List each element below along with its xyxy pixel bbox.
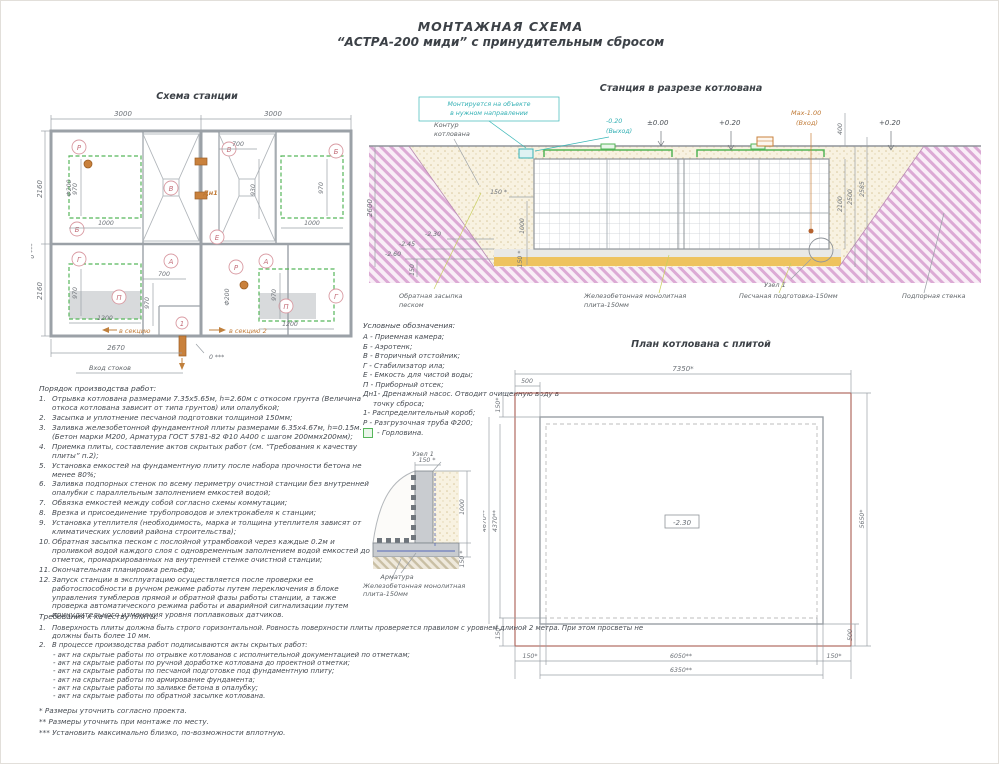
distribution-box-icon — [757, 137, 773, 146]
label-P-otsek2: П — [283, 303, 289, 311]
dim-2585: 2585 — [859, 181, 866, 197]
dim-6050: 6050** — [670, 653, 692, 660]
elev-260: -2.60 — [385, 251, 401, 258]
dim-f200-right: Ф200 — [224, 288, 231, 305]
dim-500-right: 500 — [847, 629, 854, 641]
dim-970: 970 — [72, 287, 79, 299]
legend-title: Условные обозначения: — [363, 321, 573, 331]
label-A1: А — [168, 258, 174, 266]
work-order-item: 7.Обвязка емкостей между собой согласно … — [39, 499, 371, 508]
sheet-title-line2: “АСТРА-200 миди” с принудительным сбросо… — [1, 35, 999, 49]
node1-dim-150-top: 150 * — [419, 457, 436, 464]
outlet-elevation: -0.20 — [606, 118, 622, 125]
dim-7350: 7350* — [672, 365, 694, 373]
inlet-word: (Вход) — [796, 119, 818, 127]
work-order-item: 6.Заливка подпорных стенок по всему пери… — [39, 480, 371, 498]
zero-elevation: ±0.00 — [647, 119, 669, 127]
dim-150-topleft: 150* — [495, 398, 502, 413]
work-order-item: 2.Засыпка и уплотнение песчаной подготов… — [39, 414, 371, 423]
hidden-work-act: - акт на скрытые работы по песчаной подг… — [39, 667, 659, 675]
inlet-label: Вход стоков — [89, 364, 131, 372]
label-V2: В — [227, 146, 232, 154]
label-distribution-box: 1 — [180, 320, 184, 328]
relief-pipe-icon — [240, 281, 248, 289]
dim-400: 400 — [837, 123, 844, 135]
node1-backfill — [433, 471, 459, 543]
drawing-sheet: МОНТАЖНАЯ СХЕМА “АСТРА-200 миди” с прину… — [0, 0, 999, 764]
dim-6350: 6350** — [670, 667, 692, 674]
station-tanks — [534, 159, 829, 249]
dim-4370: 4370** — [492, 510, 499, 532]
plate-requirements-block: Требования к качеству плиты: 1.Поверхнос… — [39, 613, 659, 700]
contour-label1: Контур — [434, 121, 459, 129]
plus020-right: +0.20 — [879, 119, 901, 127]
axis-mark-bottom: 0 *** — [209, 354, 224, 361]
retaining-wall-label: Подпорная стенка — [902, 292, 965, 300]
work-order-title: Порядок производства работ: — [39, 384, 371, 393]
label-A2: А — [263, 258, 269, 266]
dim-3000-right: 3000 — [264, 110, 282, 118]
dim-150-bottom: 150 * — [517, 251, 524, 268]
inlet-elevation: Max-1.00 — [791, 109, 821, 117]
dim-970: 970 — [271, 289, 278, 301]
dim-2600: 2600 — [366, 199, 374, 217]
node1-rebar-label: Арматура — [379, 573, 413, 581]
to-section1-label: в секцию — [119, 327, 151, 335]
node1-callout-label: Узел 1 — [764, 281, 786, 289]
dim-1200: 1200 — [97, 315, 113, 322]
dim-2160-bottom: 2160 — [36, 282, 44, 300]
to-section2-label: в секцию 2 — [229, 327, 267, 335]
plate-req-item: 2.В процессе производства работ подписыв… — [39, 641, 659, 649]
work-order-item: 4.Приемка плиты, составление актов скрыт… — [39, 443, 371, 461]
mount-note-line2: в нужном направлении — [450, 110, 528, 117]
dim-500-top: 500 — [521, 378, 533, 385]
work-order-item: 1.Отрывка котлована размерами 7.35х5.65м… — [39, 395, 371, 413]
slab-band — [494, 249, 841, 257]
dim-970: 970 — [144, 297, 151, 309]
dim-930: 930 — [250, 184, 257, 196]
hidden-work-act: - акт на скрытые работы по обратной засы… — [39, 692, 659, 700]
hidden-work-act: - акт на скрытые работы по отрывке котло… — [39, 651, 659, 659]
node1-dim-1000: 1000 — [459, 499, 466, 515]
hidden-work-act: - акт на скрытые работы по армирование ф… — [39, 676, 659, 684]
dim-1000: 1000 — [519, 218, 526, 234]
pit-plan-title: План котлована с плитой — [483, 339, 919, 350]
plus020-left: +0.20 — [719, 119, 741, 127]
node1-sand-under — [373, 557, 459, 569]
mount-note-line1: Монтируется на объекте — [447, 100, 530, 108]
label-B1: Б — [75, 226, 80, 234]
dim-2100: 2100 — [837, 196, 844, 212]
label-P-otsek1: П — [116, 294, 122, 302]
hidden-work-act: - акт на скрытые работы по заливке бетон… — [39, 684, 659, 692]
slab-label2: плита-150мм — [584, 301, 629, 309]
elev-230: -2.30 — [425, 231, 441, 238]
slab-label1: Железобетонная монолитная — [583, 292, 686, 300]
node1-slab-label1: Железобетонная монолитная — [362, 582, 465, 590]
work-order-item: 8.Врезка и присоединение трубопроводов и… — [39, 509, 371, 518]
footnote: *** Установить максимально близко, по-во… — [39, 729, 379, 738]
pit-cross-section-drawing: Монтируется на объекте в нужном направле… — [359, 93, 993, 329]
sand-prep-label: Песчаная подготовка-150мм — [739, 292, 838, 300]
node1-detail-drawing: Узел 1 150 * 1000 150 * Арматура Железоб… — [361, 447, 485, 597]
dim-970: 970 — [318, 182, 325, 194]
outlet-pipe-icon — [519, 149, 533, 158]
dim-150-top: 150 * — [490, 189, 507, 196]
hatch-label: - Горловина. — [377, 428, 424, 438]
outlet-word: (Выход) — [606, 128, 632, 135]
backfill-label2: песком — [399, 301, 424, 309]
dim-1000: 1000 — [304, 220, 320, 227]
dim-2160-top: 2160 — [36, 180, 44, 198]
dim-970: 970 — [72, 183, 79, 195]
axis-mark-left: 0 *** — [31, 243, 36, 258]
backfill-label1: Обратная засыпка — [399, 292, 463, 300]
hidden-work-act: - акт на скрытые работы по ручной дорабо… — [39, 659, 659, 667]
footnote: ** Размеры уточнить при монтаже по месту… — [39, 718, 379, 727]
dim-2500: 2500 — [847, 189, 854, 205]
sheet-title-line1: МОНТАЖНАЯ СХЕМА — [1, 19, 999, 34]
pit-bottom-elevation: -2.30 — [673, 519, 692, 527]
label-Dn1: Дн1 — [202, 189, 218, 197]
footnote: * Размеры уточнить согласно проекта. — [39, 707, 379, 716]
work-order-item: 11.Окончательная планировка рельефа; — [39, 566, 371, 575]
contour-label2: котлована — [434, 130, 470, 138]
work-order-block: Порядок производства работ: 1.Отрывка ко… — [39, 384, 371, 621]
undisturbed-soil-bottom — [459, 267, 879, 283]
node1-retaining-wall — [415, 471, 433, 543]
work-order-item: 10.Обратная засыпка песком с послойной у… — [39, 538, 371, 565]
dim-150: 150 — [409, 264, 416, 276]
dim-1200: 1200 — [282, 321, 298, 328]
elev-245: -2.45 — [399, 241, 415, 248]
station-plan-drawing: Р Б В В Б Е Г П А 1 Р А П Г Дн1 — [31, 101, 363, 381]
dim-2670: 2670 — [107, 344, 125, 352]
dim-700: 700 — [158, 271, 170, 278]
node1-tank-wall — [373, 471, 415, 543]
node1-slab — [373, 543, 459, 557]
dim-150-bottom-b: 150* — [827, 653, 842, 660]
footnotes-block: * Размеры уточнить согласно проекта. ** … — [39, 707, 379, 740]
work-order-item: 3.Заливка железобетонной фундаментной пл… — [39, 424, 371, 442]
dim-3000-left: 3000 — [114, 110, 132, 118]
node1-dim-150-bottom: 150 * — [459, 551, 466, 568]
label-V1: В — [169, 185, 174, 193]
dim-1000: 1000 — [98, 220, 114, 227]
plate-req-item: 1.Поверхность плиты должна быть строго г… — [39, 624, 659, 641]
label-E: Е — [215, 234, 220, 242]
work-order-item: 9.Установка утеплителя (необходимость, м… — [39, 519, 371, 537]
dim-700: 700 — [232, 141, 244, 148]
label-B2: Б — [334, 148, 339, 156]
relief-pipe-icon — [84, 160, 92, 168]
work-order-item: 5.Установка емкостей на фундаментную пли… — [39, 462, 371, 480]
dim-5650: 5650* — [859, 510, 866, 529]
plate-req-title: Требования к качеству плиты: — [39, 613, 659, 622]
